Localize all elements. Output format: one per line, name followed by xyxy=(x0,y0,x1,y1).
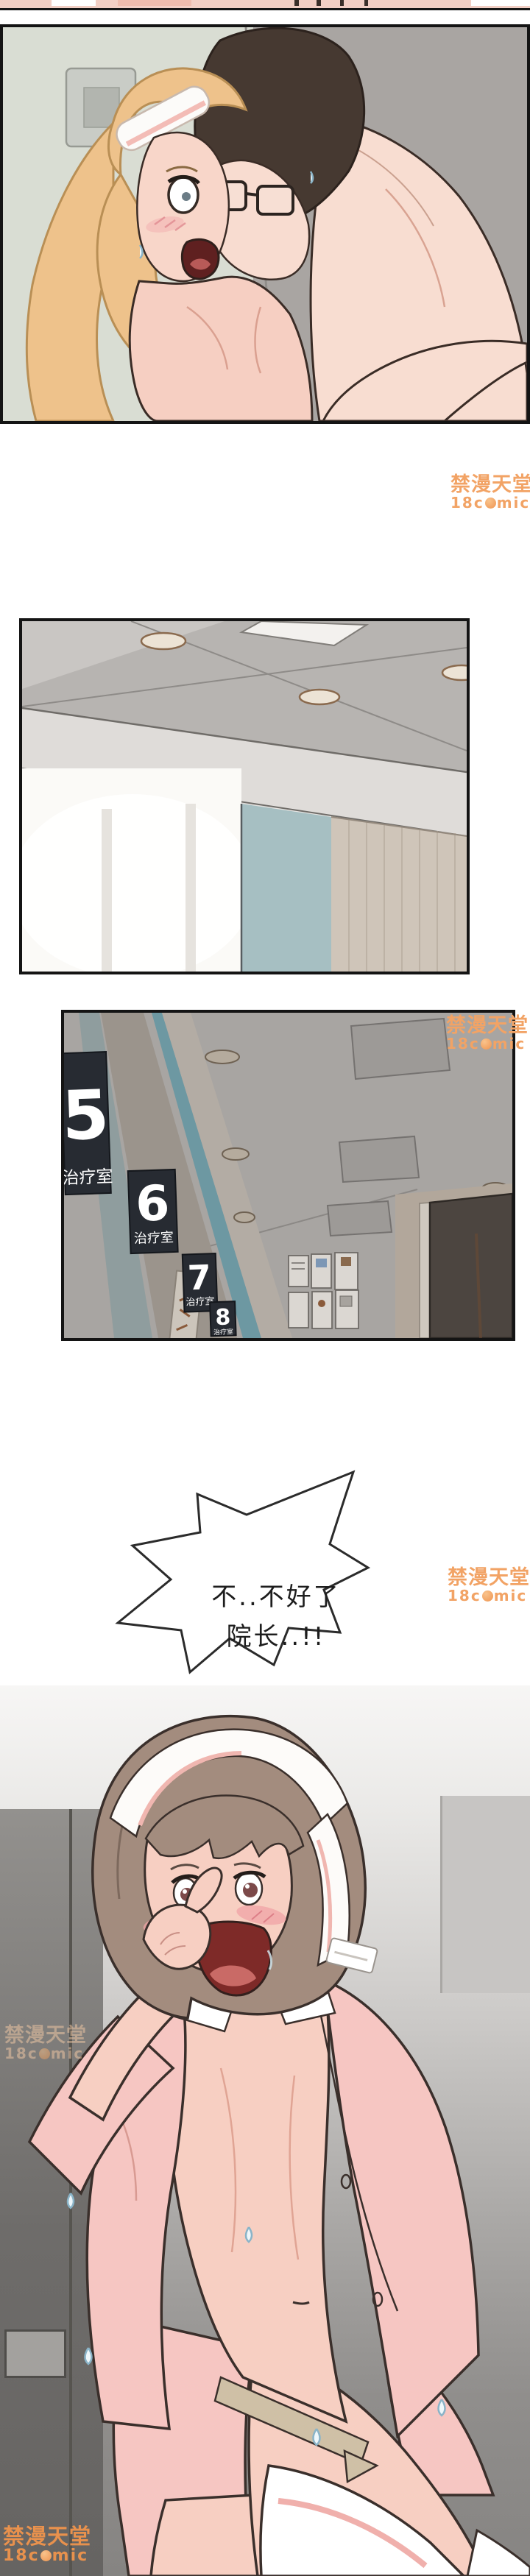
teal-wall xyxy=(241,804,331,972)
sign-label: 治疗室 xyxy=(213,1327,233,1337)
peach-icon xyxy=(481,1038,492,1050)
watermark: 禁漫天堂 18cmic xyxy=(451,475,530,510)
glint-left xyxy=(183,1889,187,1894)
eye-pupil xyxy=(182,192,191,201)
sign-number: 5 xyxy=(64,1075,110,1156)
sweat-drop xyxy=(311,171,313,183)
watermark-faint: 禁漫天堂 18cmic xyxy=(4,2025,87,2061)
peach-icon xyxy=(39,2048,50,2059)
window-mullion xyxy=(185,804,196,972)
watermark-brand: 禁漫天堂 xyxy=(4,2025,87,2046)
watermark-brand: 禁漫天堂 xyxy=(3,2526,91,2548)
sliver-hair-line xyxy=(364,0,368,6)
shirt-right-panel xyxy=(324,1980,478,2436)
peach-icon xyxy=(485,498,496,509)
sliver-highlight xyxy=(471,0,530,6)
speech-line-1: 不..不好了 xyxy=(166,1577,386,1613)
sliver-hair-line xyxy=(294,0,299,6)
beige-wall xyxy=(331,817,467,972)
iris-right xyxy=(243,1883,258,1897)
peach-icon xyxy=(40,2550,52,2561)
sign-number: 8 xyxy=(215,1304,231,1331)
sign-label: 治疗室 xyxy=(64,1167,113,1188)
panel-2-art xyxy=(22,621,467,972)
watermark-logo: 18cmic xyxy=(446,1036,529,1051)
glint-right xyxy=(245,1884,250,1889)
sign-label: 治疗室 xyxy=(134,1230,174,1247)
sliver-hair-line xyxy=(340,0,344,6)
watermark-logo: 18cmic xyxy=(4,2046,87,2061)
watermark-logo: 18cmic xyxy=(448,1588,530,1603)
panel-3-art: 5 治疗室 6 治疗室 7 治疗室 8 治疗室 xyxy=(64,1013,512,1338)
watermark: 禁漫天堂 18cmic xyxy=(448,1568,530,1603)
stocking-corner xyxy=(467,2530,530,2576)
panel-1-couple xyxy=(0,24,530,424)
sign-room-5: 5 治疗室 xyxy=(64,1052,113,1195)
window-mullion xyxy=(102,809,112,972)
panel-2-room xyxy=(19,618,470,974)
door-frame xyxy=(420,1203,430,1338)
speech-line-2: 院长..!! xyxy=(166,1616,386,1652)
sign-room-8: 8 治疗室 xyxy=(210,1301,236,1337)
sliver-hair-line xyxy=(317,0,321,6)
sliver-skin-shade xyxy=(118,0,191,6)
sign-number: 7 xyxy=(187,1257,212,1298)
watermark-brand: 禁漫天堂 xyxy=(448,1568,530,1588)
panel-3-hallway: 5 治疗室 6 治疗室 7 治疗室 8 治疗室 xyxy=(61,1010,515,1341)
nurse-figure xyxy=(0,1685,530,2576)
watermark-brand: 禁漫天堂 xyxy=(446,1016,529,1036)
sign-number: 6 xyxy=(135,1175,171,1233)
sign-room-6: 6 治疗室 xyxy=(128,1170,178,1253)
shirt-button xyxy=(342,2175,350,2188)
panel-1-art xyxy=(3,27,527,421)
left-leg xyxy=(151,2495,265,2576)
watermark-logo: 18cmic xyxy=(451,495,530,510)
peach-icon xyxy=(482,1590,493,1602)
watermark: 禁漫天堂 18cmic xyxy=(3,2526,91,2564)
previous-panel-sliver xyxy=(0,0,530,10)
sliver-highlight xyxy=(52,0,96,6)
watermark-brand: 禁漫天堂 xyxy=(451,475,530,495)
webtoon-page: 禁漫天堂 18cmic xyxy=(0,0,530,2576)
dark-door xyxy=(430,1194,512,1338)
watermark: 禁漫天堂 18cmic xyxy=(446,1016,529,1051)
watermark-logo: 18cmic xyxy=(3,2548,91,2564)
